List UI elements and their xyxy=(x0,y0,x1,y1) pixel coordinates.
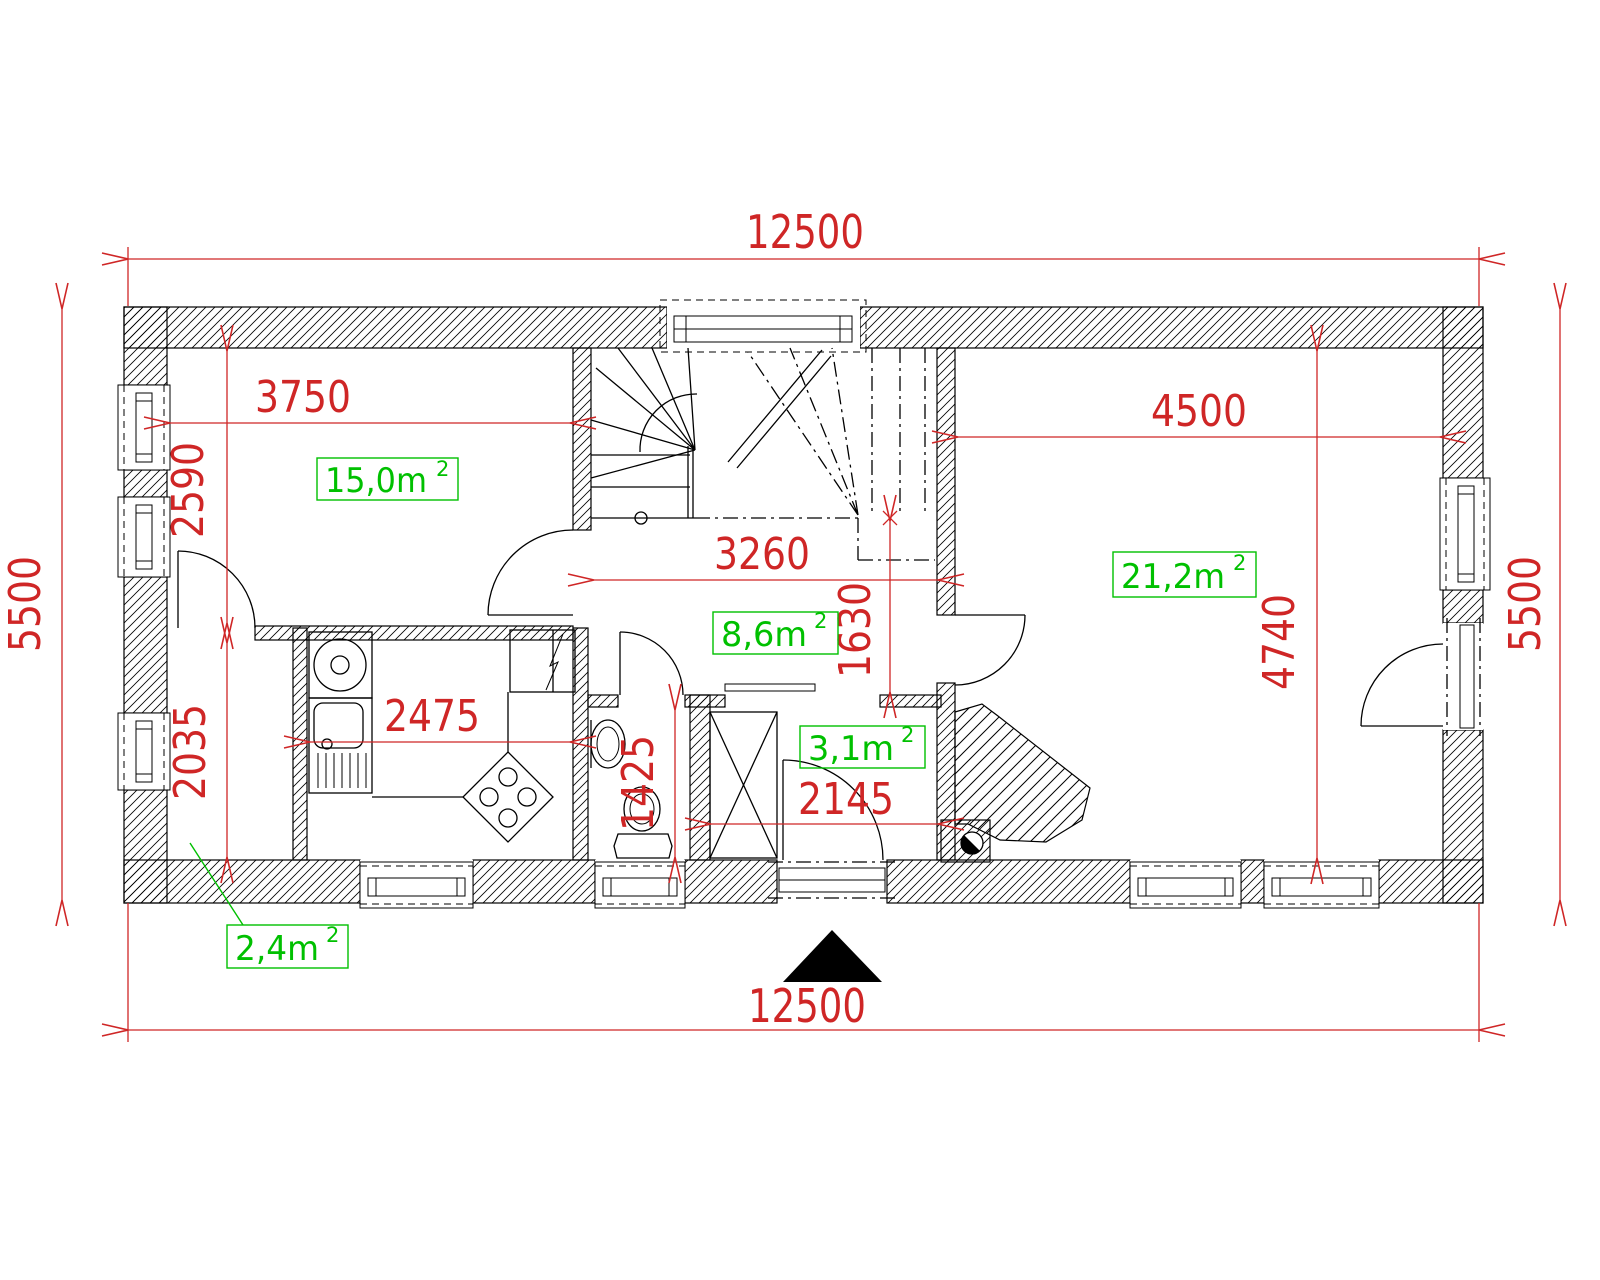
wall-bath-top-right xyxy=(685,695,725,707)
dim-overall-bottom: 12500 xyxy=(748,979,866,1033)
area-vestibule-sup: 2 xyxy=(901,723,914,747)
area-entry-text: 2,4m xyxy=(235,929,319,969)
wall-bath-top-left xyxy=(588,695,618,707)
floor-plan-canvas: 12500 12500 5500 5500 3750 2590 4500 474… xyxy=(0,0,1600,1280)
area-room2-text: 21,2m xyxy=(1121,557,1225,597)
wall-bath-right xyxy=(690,695,710,860)
door-hall-room2 xyxy=(955,615,1025,685)
area-label-room2: 21,2m 2 xyxy=(1113,551,1256,597)
window-bottom-room2-a xyxy=(1130,860,1241,908)
window-top-stairs xyxy=(660,300,866,352)
wall-left-3 xyxy=(124,790,167,903)
wall-bottom-3 xyxy=(685,860,777,903)
wall-bottom-pier xyxy=(1241,860,1264,903)
wall-top-left-segment xyxy=(124,307,667,348)
wall-left-pier xyxy=(124,470,167,497)
area-label-vestibule: 3,1m 2 xyxy=(800,723,925,769)
wall-bottom-2 xyxy=(473,860,595,903)
window-bottom-room2-b xyxy=(1264,860,1379,908)
door-bathroom xyxy=(620,632,683,695)
door-living-corridor xyxy=(178,551,255,628)
dim-overall-right: 5500 xyxy=(1500,556,1551,652)
dim-living-width: 3750 xyxy=(255,372,351,423)
kitchen-sink-basin xyxy=(314,703,363,748)
kitchen-drainboard xyxy=(318,753,366,788)
wall-stair-left xyxy=(573,348,591,530)
stair-break-line xyxy=(728,350,831,468)
area-hall-text: 8,6m xyxy=(721,615,807,655)
door-terrace-room2 xyxy=(1361,618,1483,736)
wall-right-2 xyxy=(1443,730,1483,903)
dim-entry-height: 2035 xyxy=(165,704,216,800)
floor-plan-page: 12500 12500 5500 5500 3750 2590 4500 474… xyxy=(0,0,1600,1280)
area-label-hall: 8,6m 2 xyxy=(713,609,838,655)
area-living-sup: 2 xyxy=(436,457,449,481)
wall-top-right-segment xyxy=(860,307,1483,348)
window-right xyxy=(1440,478,1490,590)
lightning-icon xyxy=(546,634,563,690)
wall-bottom-4 xyxy=(887,860,1130,903)
wall-left-1 xyxy=(124,307,167,385)
dim-room2-height: 4740 xyxy=(1254,594,1305,690)
wall-vestibule-top xyxy=(880,695,941,707)
area-vestibule-text: 3,1m xyxy=(808,729,894,769)
window-bottom-kitchen xyxy=(360,860,473,908)
wall-right-pier xyxy=(1443,590,1483,623)
area-room2-sup: 2 xyxy=(1233,551,1246,575)
area-label-living: 15,0m 2 xyxy=(317,457,458,501)
chimney-flue-symbol xyxy=(961,832,983,854)
entrance-marker-triangle xyxy=(783,930,882,982)
kitchen-appliance xyxy=(309,632,372,698)
area-hall-sup: 2 xyxy=(814,609,827,633)
wall-left-2 xyxy=(124,577,167,713)
wall-entry-corridor xyxy=(293,628,307,860)
dim-bath-height: 1425 xyxy=(613,735,664,831)
dim-hall-width: 3260 xyxy=(714,529,810,580)
wall-right-1 xyxy=(1443,307,1483,478)
dim-kitchen-width: 2475 xyxy=(384,691,480,742)
dim-overall-left: 5500 xyxy=(0,556,51,652)
dim-living-height: 2590 xyxy=(163,442,214,538)
passage-lintel xyxy=(725,684,815,691)
area-entry-sup: 2 xyxy=(326,923,339,947)
wall-hall-east-upper xyxy=(937,348,955,615)
kitchen-stove xyxy=(463,752,553,842)
window-bottom-bath xyxy=(595,860,685,908)
door-hall-living xyxy=(488,530,573,615)
dim-overall-top: 12500 xyxy=(746,205,864,259)
dim-room2-width: 4500 xyxy=(1151,386,1247,437)
closet xyxy=(710,712,777,858)
area-living-text: 15,0m xyxy=(325,461,427,501)
dim-vestibule-width: 2145 xyxy=(798,774,894,825)
window-left-3 xyxy=(118,713,170,790)
